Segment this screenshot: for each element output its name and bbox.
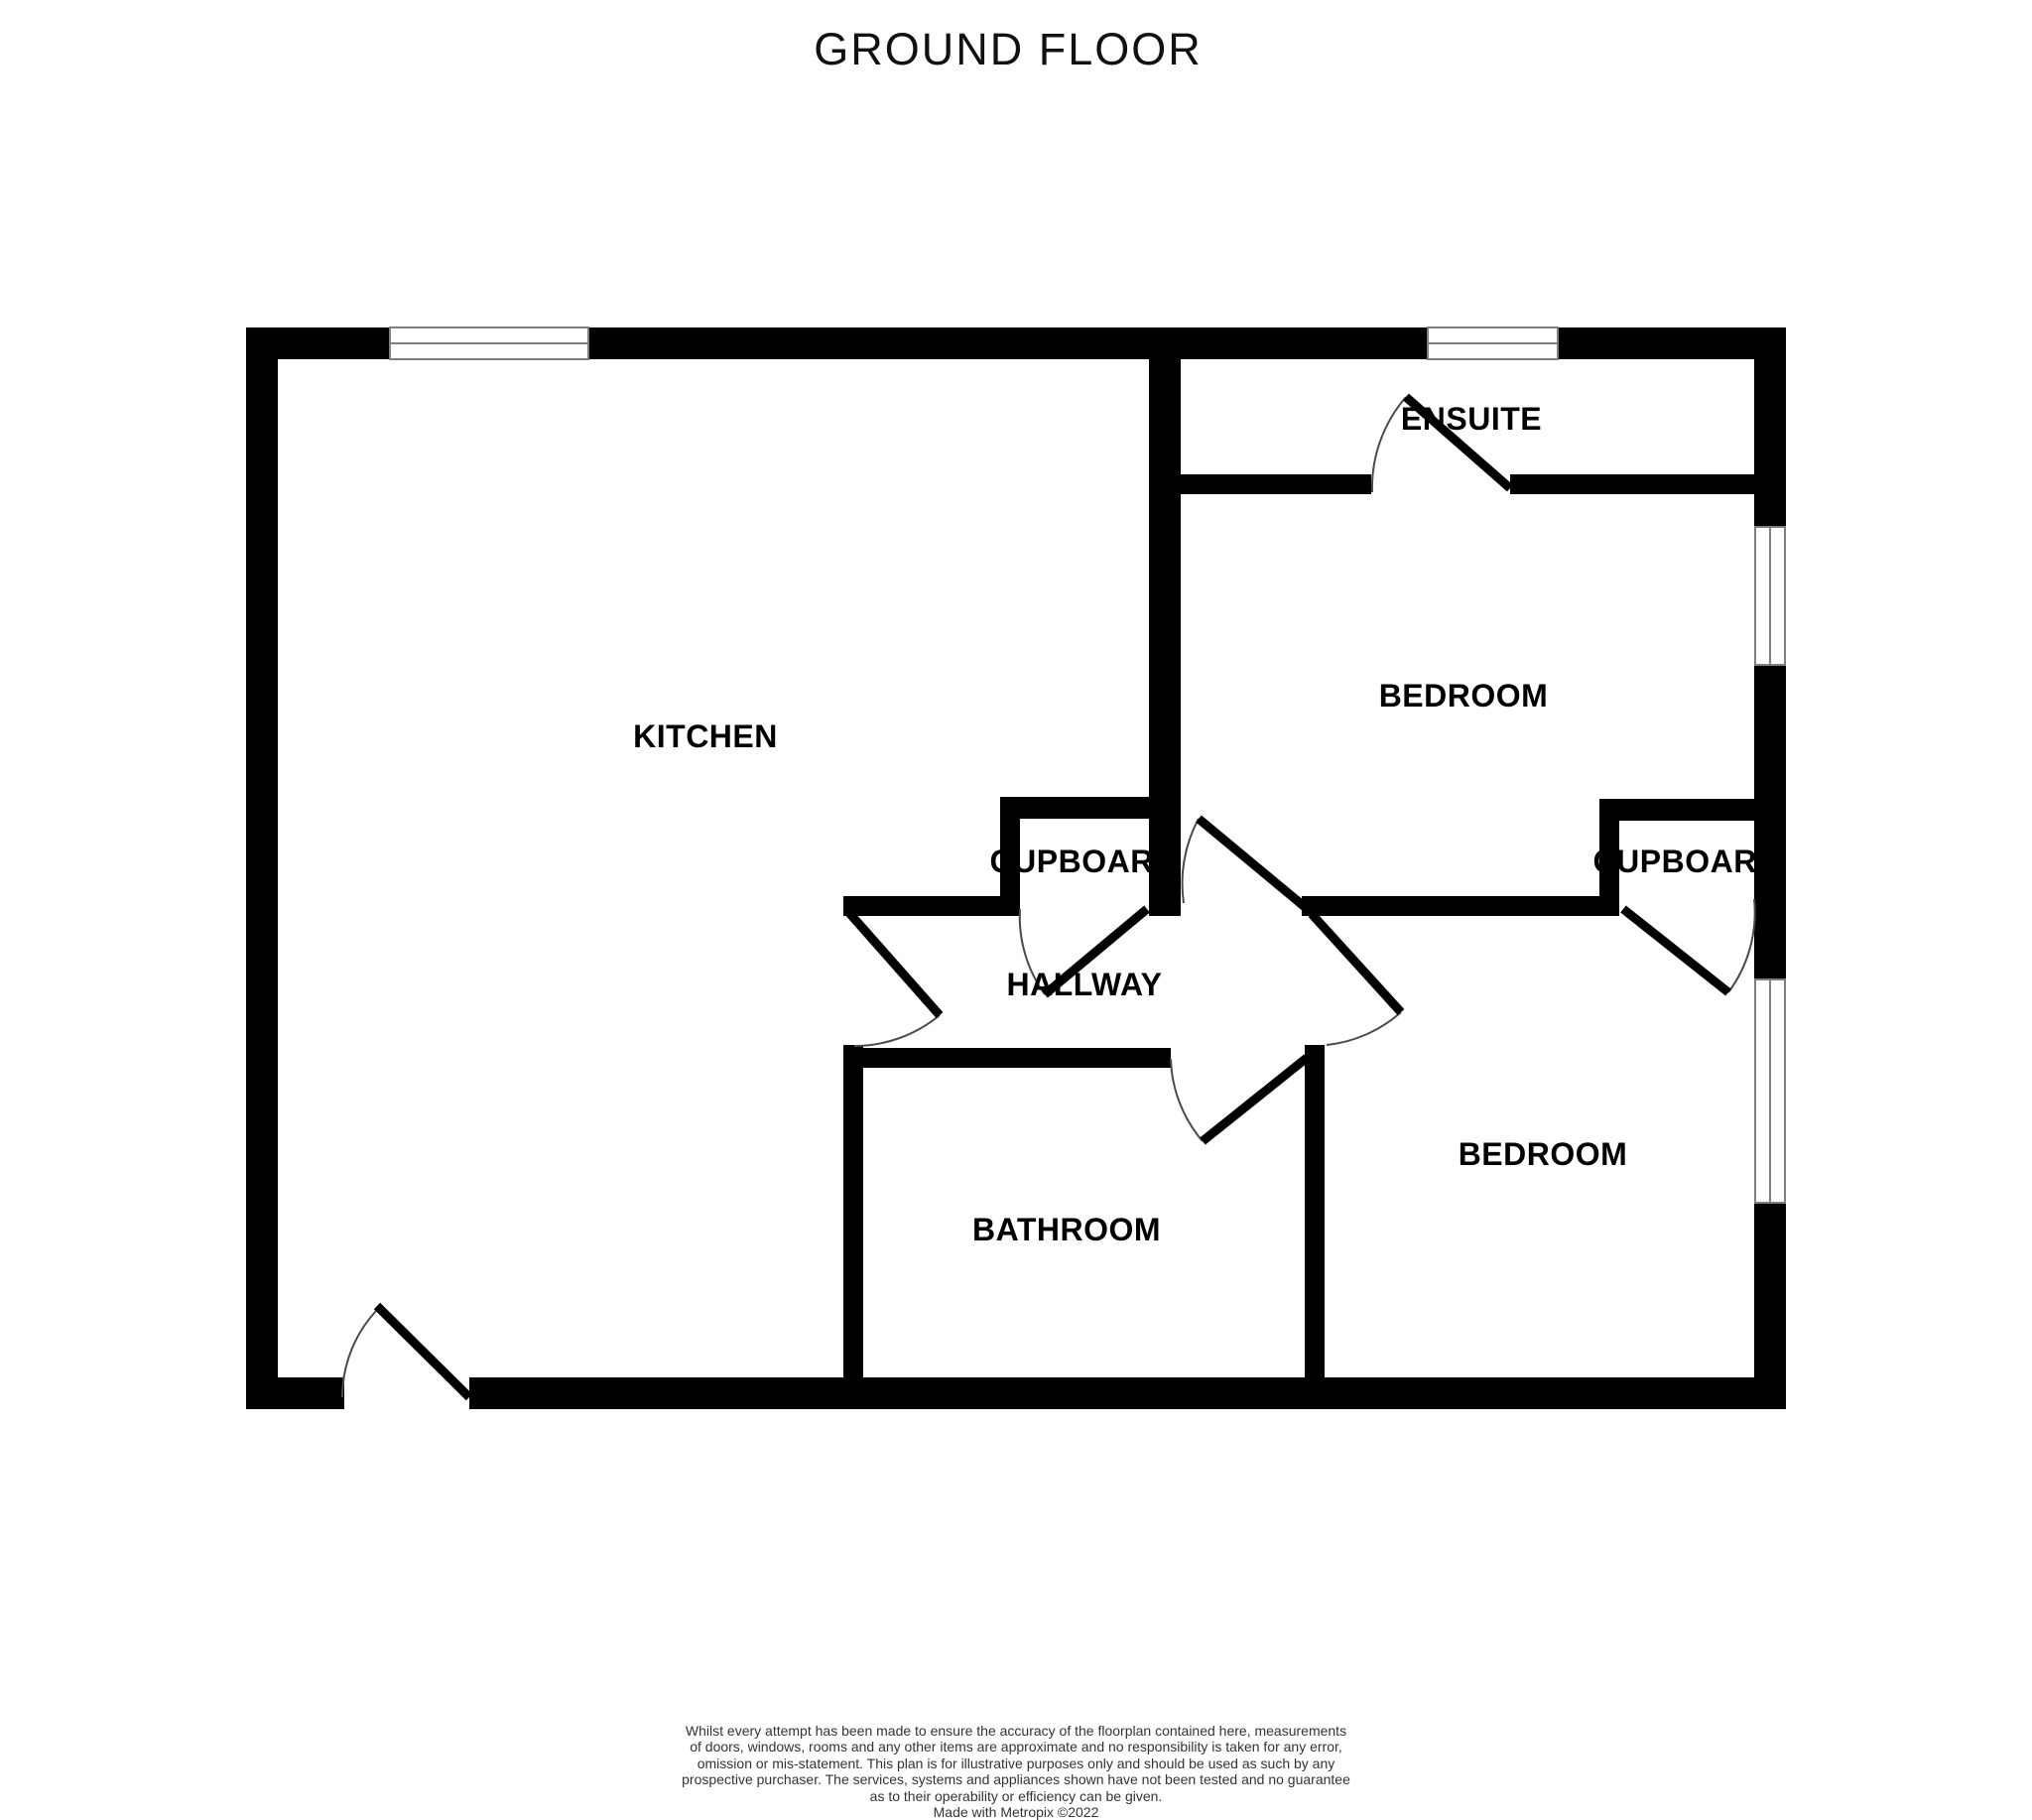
door-leaf <box>377 1306 469 1397</box>
wall-segment <box>1305 1045 1325 1377</box>
disclaimer-line: omission or mis-statement. This plan is … <box>0 1755 2032 1771</box>
window <box>1428 327 1558 359</box>
wall-segment <box>246 327 278 1409</box>
room-label-bedroom-bottom: BEDROOM <box>1459 1136 1628 1172</box>
wall-segment <box>843 1048 1171 1068</box>
door-swing-arc <box>1183 819 1199 903</box>
wall-segment <box>1000 797 1149 819</box>
wall-segment <box>469 1377 1786 1409</box>
disclaimer-line: of doors, windows, rooms and any other i… <box>0 1739 2032 1755</box>
clipped-labels: CUPBOARD CUPBOARD <box>990 844 1781 879</box>
disclaimer-line: prospective purchaser. The services, sys… <box>0 1771 2032 1787</box>
door-swing-arc <box>854 1015 940 1046</box>
floorplan-title: GROUND FLOOR <box>814 24 1203 74</box>
disclaimer-line: Whilst every attempt has been made to en… <box>0 1723 2032 1739</box>
room-label-hallway: HALLWAY <box>1007 967 1163 1002</box>
room-label-ensuite: ENSUITE <box>1401 401 1542 437</box>
door-swing-arc <box>1171 1059 1203 1141</box>
room-labels: KITCHEN ENSUITE BEDROOM HALLWAY BATHROOM… <box>633 401 1627 1247</box>
floorplan-canvas: GROUND FLOOR CUPBOARD CUPBOARD <box>0 0 2032 1818</box>
wall-segment <box>843 896 1020 916</box>
room-label-kitchen: KITCHEN <box>633 718 778 754</box>
wall-segment <box>1181 474 1371 494</box>
window <box>390 327 588 359</box>
disclaimer: Whilst every attempt has been made to en… <box>0 1723 2032 1820</box>
window <box>1755 979 1785 1203</box>
wall-segment <box>1754 327 1786 1409</box>
door-leaf <box>1623 909 1728 992</box>
door-leaf <box>1312 914 1401 1012</box>
room-label-cupboard-right: CUPBOARD <box>1593 844 1781 879</box>
door-leaf <box>1199 819 1310 911</box>
wall-segment <box>1599 799 1754 821</box>
wall-segment <box>1302 896 1599 916</box>
disclaimer-line: as to their operability or efficiency ca… <box>0 1788 2032 1804</box>
door-leaf <box>849 913 940 1015</box>
windows <box>390 327 1785 1203</box>
wall-segment <box>1149 359 1181 916</box>
wall-segment <box>246 1377 344 1409</box>
door-swing-arc <box>1728 899 1755 992</box>
door-swing-arc <box>342 1307 380 1397</box>
floorplan-page: GROUND FLOOR CUPBOARD CUPBOARD <box>0 0 2032 1818</box>
wall-segment <box>843 1045 863 1377</box>
room-label-bedroom-top: BEDROOM <box>1379 678 1549 714</box>
room-label-bathroom: BATHROOM <box>972 1212 1161 1247</box>
wall-segment <box>1510 474 1754 494</box>
wall-segment <box>1599 799 1619 916</box>
door-leaf <box>1203 1058 1307 1141</box>
window <box>1755 527 1785 665</box>
door-swing-arc <box>1327 1012 1401 1045</box>
